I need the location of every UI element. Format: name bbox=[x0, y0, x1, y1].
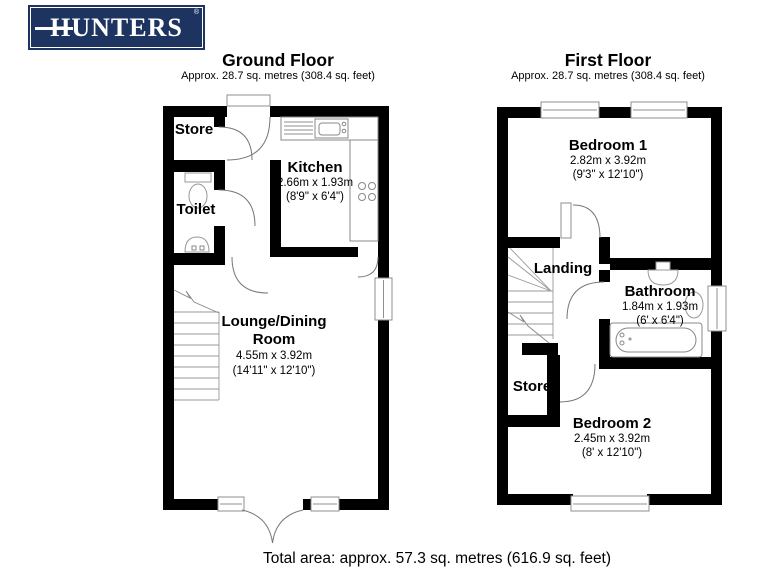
bedroom2-dims-imperial: (8' x 12'10") bbox=[582, 447, 642, 459]
kitchen-dims-imperial: (8'9" x 6'4") bbox=[286, 191, 344, 203]
bedroom1-dims-metric: 2.82m x 3.92m bbox=[570, 155, 646, 167]
kitchen-dims-metric: 2.66m x 1.93m bbox=[277, 177, 353, 189]
ground-walls bbox=[163, 106, 389, 510]
basin-tap bbox=[656, 262, 670, 270]
hunters-logo-frame: HUNTERS ® bbox=[30, 7, 203, 48]
french-door-left-arc bbox=[242, 510, 273, 543]
bedroom1-dims-imperial: (9'3" x 12'10") bbox=[573, 169, 644, 181]
bathroom-dims-imperial: (6' x 6'4") bbox=[636, 315, 684, 327]
stairs-direction-arrow bbox=[508, 312, 549, 343]
bathroom-door-arc bbox=[567, 282, 604, 319]
bathroom-dims-metric: 1.84m x 1.93m bbox=[622, 301, 698, 313]
lounge-dims-imperial: (14'11" x 12'10") bbox=[233, 365, 316, 377]
ground-floor-title: Ground Floor bbox=[160, 50, 396, 70]
landing-label: Landing bbox=[534, 260, 592, 277]
hunters-logo: HUNTERS ® bbox=[28, 5, 205, 50]
bedroom1-door-leaf bbox=[561, 203, 571, 238]
kitchen-counter-top bbox=[281, 117, 378, 140]
stairs-direction-arrow bbox=[174, 290, 219, 313]
kitchen-counter-right bbox=[350, 140, 378, 241]
kitchen-door-arc bbox=[358, 257, 378, 277]
bathroom-label: Bathroom bbox=[625, 283, 696, 300]
first-store-label: Store bbox=[513, 378, 551, 395]
first-floor-plan: Bedroom 1 2.82m x 3.92m (9'3" x 12'10") … bbox=[497, 95, 730, 519]
first-floor-subtitle: Approx. 28.7 sq. metres (308.4 sq. feet) bbox=[494, 70, 722, 83]
lounge-label-line1: Lounge/Dining bbox=[222, 313, 327, 330]
toilet-door-arc bbox=[219, 190, 255, 226]
ground-floor-header: Ground Floor Approx. 28.7 sq. metres (30… bbox=[160, 50, 396, 83]
hall-lounge-door-arc bbox=[232, 257, 268, 293]
bedroom1-label: Bedroom 1 bbox=[569, 137, 647, 154]
basin bbox=[185, 237, 209, 252]
store-door-arc bbox=[219, 127, 252, 160]
first-doors bbox=[560, 203, 604, 402]
lounge-label-line2: Room bbox=[253, 331, 296, 348]
bedroom2-dims-metric: 2.45m x 3.92m bbox=[574, 433, 650, 445]
lounge-dims-metric: 4.55m x 3.92m bbox=[236, 350, 312, 362]
hob bbox=[359, 183, 376, 201]
registered-trademark-icon: ® bbox=[194, 9, 199, 16]
front-door-arc bbox=[227, 117, 270, 160]
front-door-leaf bbox=[227, 95, 270, 106]
first-floor-header: First Floor Approx. 28.7 sq. metres (308… bbox=[494, 50, 722, 83]
bedroom2-door-arc bbox=[560, 364, 595, 402]
logo-h-crossbar bbox=[35, 27, 73, 30]
first-floor-title: First Floor bbox=[494, 50, 722, 70]
ground-floor-plan: Store Toilet Kitchen 2.66m x 1.93m (8'9"… bbox=[163, 94, 393, 546]
ground-stairs bbox=[174, 290, 219, 400]
bedroom2-label: Bedroom 2 bbox=[573, 415, 651, 432]
floorplan-page: HUNTERS ® Ground Floor Approx. 28.7 sq. … bbox=[0, 0, 768, 576]
bedroom1-door-arc bbox=[573, 205, 600, 238]
kitchen-label: Kitchen bbox=[287, 159, 342, 176]
ground-floor-subtitle: Approx. 28.7 sq. metres (308.4 sq. feet) bbox=[160, 70, 396, 83]
wc-cistern bbox=[185, 173, 211, 182]
ground-store-label: Store bbox=[175, 121, 213, 138]
french-door-right-arc bbox=[273, 510, 304, 543]
total-area-text: Total area: approx. 57.3 sq. metres (616… bbox=[107, 550, 767, 568]
toilet-label: Toilet bbox=[177, 201, 216, 218]
